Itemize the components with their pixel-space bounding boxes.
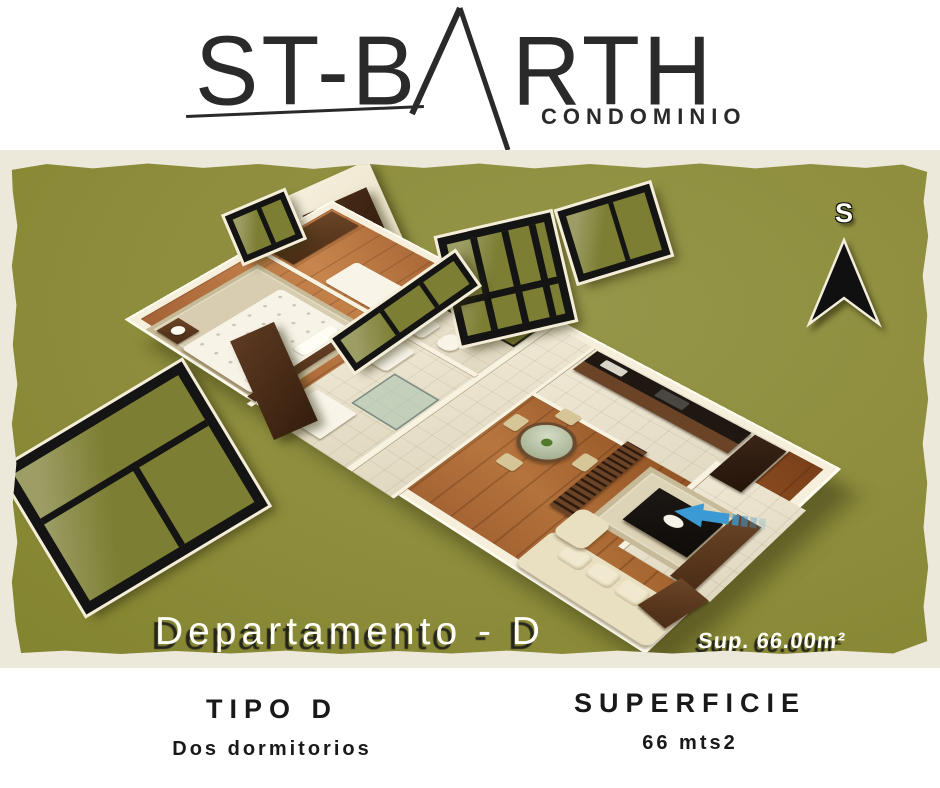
logo-subtitle: CONDOMINIO <box>541 104 746 130</box>
window-mullion <box>419 282 439 308</box>
window-mullion <box>130 461 185 547</box>
window-mullion <box>501 230 529 323</box>
window-mullion <box>380 310 400 336</box>
window-mullion <box>529 224 557 317</box>
logo-area: ST-B RTH CONDOMINIO <box>0 0 940 150</box>
surface-note: Sup. 66.00m² <box>697 628 847 654</box>
mountain-a-icon <box>402 2 520 152</box>
compass-arrow-icon <box>806 236 884 330</box>
type-subtitle: Dos dormitorios <box>112 738 432 761</box>
floor-plan-board: S Departamento - D Sup. 66.00m² <box>10 162 930 656</box>
plan-caption: Departamento - D <box>155 610 545 654</box>
kitchen-stove <box>654 389 690 411</box>
type-title: TIPO D <box>112 694 432 725</box>
surface-value: 66 mts2 <box>530 732 850 755</box>
flyer-page: ST-B RTH CONDOMINIO <box>0 0 940 788</box>
compass-label: S <box>822 198 866 229</box>
large-leaning-window <box>0 361 268 614</box>
surface-title: SUPERFICIE <box>530 688 850 719</box>
window-mullion <box>257 208 276 245</box>
type-spec: TIPO D Dos dormitorios <box>112 694 432 761</box>
window-mullion <box>608 202 630 261</box>
dining-chair <box>495 452 524 472</box>
kitchen-sink <box>599 360 628 377</box>
window-mullion <box>40 420 208 525</box>
table-lamp <box>168 324 188 336</box>
surface-spec: SUPERFICIE 66 mts2 <box>530 688 850 755</box>
kitchen-window <box>557 184 670 283</box>
board-frame: S Departamento - D Sup. 66.00m² <box>0 150 940 668</box>
table-plant <box>539 437 555 448</box>
